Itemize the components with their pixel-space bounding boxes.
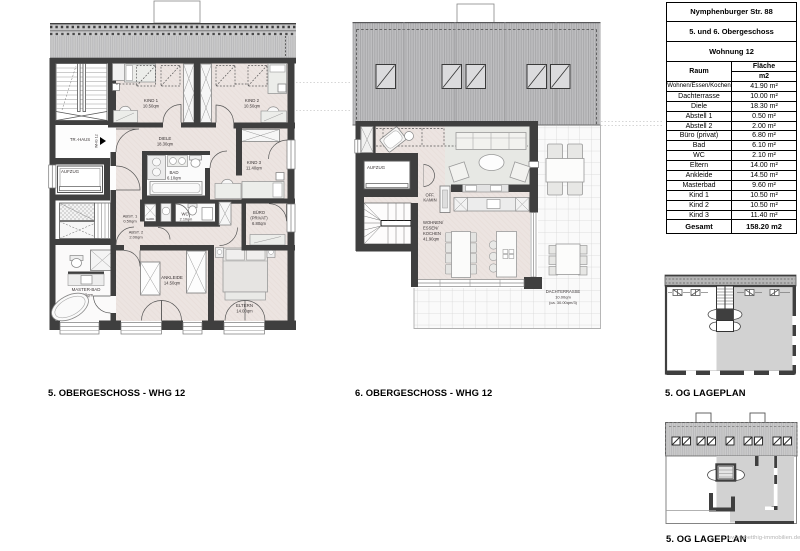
svg-text:18.30qm: 18.30qm	[157, 142, 174, 147]
svg-text:2.10qm: 2.10qm	[180, 218, 193, 222]
svg-text:(PRIVAT): (PRIVAT)	[250, 216, 268, 221]
svg-text:WHG 12: WHG 12	[95, 134, 99, 148]
svg-text:10.00qm: 10.00qm	[555, 295, 571, 300]
svg-text:DIELE: DIELE	[159, 136, 172, 141]
svg-text:KIND 3: KIND 3	[247, 160, 262, 165]
svg-text:10.50qm: 10.50qm	[143, 104, 160, 109]
svg-text:11.40qm: 11.40qm	[246, 166, 262, 171]
svg-text:AUFZUG: AUFZUG	[61, 169, 80, 174]
svg-text:TR.-HAUS: TR.-HAUS	[70, 137, 90, 142]
svg-text:2.00qm: 2.00qm	[129, 235, 143, 240]
svg-text:WC: WC	[182, 212, 189, 217]
svg-text:KOCHEN: KOCHEN	[423, 231, 441, 236]
svg-text:ESSEN/: ESSEN/	[423, 226, 439, 231]
svg-text:KIND 2: KIND 2	[245, 98, 260, 103]
svg-text:BAD: BAD	[169, 170, 178, 175]
svg-text:ANKLEIDE: ANKLEIDE	[161, 275, 183, 280]
svg-text:KAMIN: KAMIN	[423, 198, 436, 203]
svg-text:KIND 1: KIND 1	[144, 98, 159, 103]
svg-text:41.90qm: 41.90qm	[423, 237, 440, 242]
svg-text:ELTERN: ELTERN	[236, 303, 253, 308]
svg-text:MASTER-BAD: MASTER-BAD	[72, 287, 101, 292]
svg-text:(ca. 30.00qm/3): (ca. 30.00qm/3)	[549, 300, 578, 305]
svg-text:6.80qm: 6.80qm	[252, 221, 266, 226]
svg-text:10.50qm: 10.50qm	[244, 104, 261, 109]
svg-text:BÜRO: BÜRO	[253, 210, 266, 215]
svg-text:GARD.: GARD.	[146, 217, 155, 221]
svg-text:DACHTERRASSE: DACHTERRASSE	[546, 289, 581, 294]
svg-text:AUFZUG: AUFZUG	[367, 165, 386, 170]
svg-text:14.50qm: 14.50qm	[164, 281, 181, 286]
svg-text:WOHNEN/: WOHNEN/	[423, 220, 444, 225]
svg-text:0.50qm: 0.50qm	[123, 219, 137, 224]
svg-text:6.10qm: 6.10qm	[167, 176, 181, 181]
